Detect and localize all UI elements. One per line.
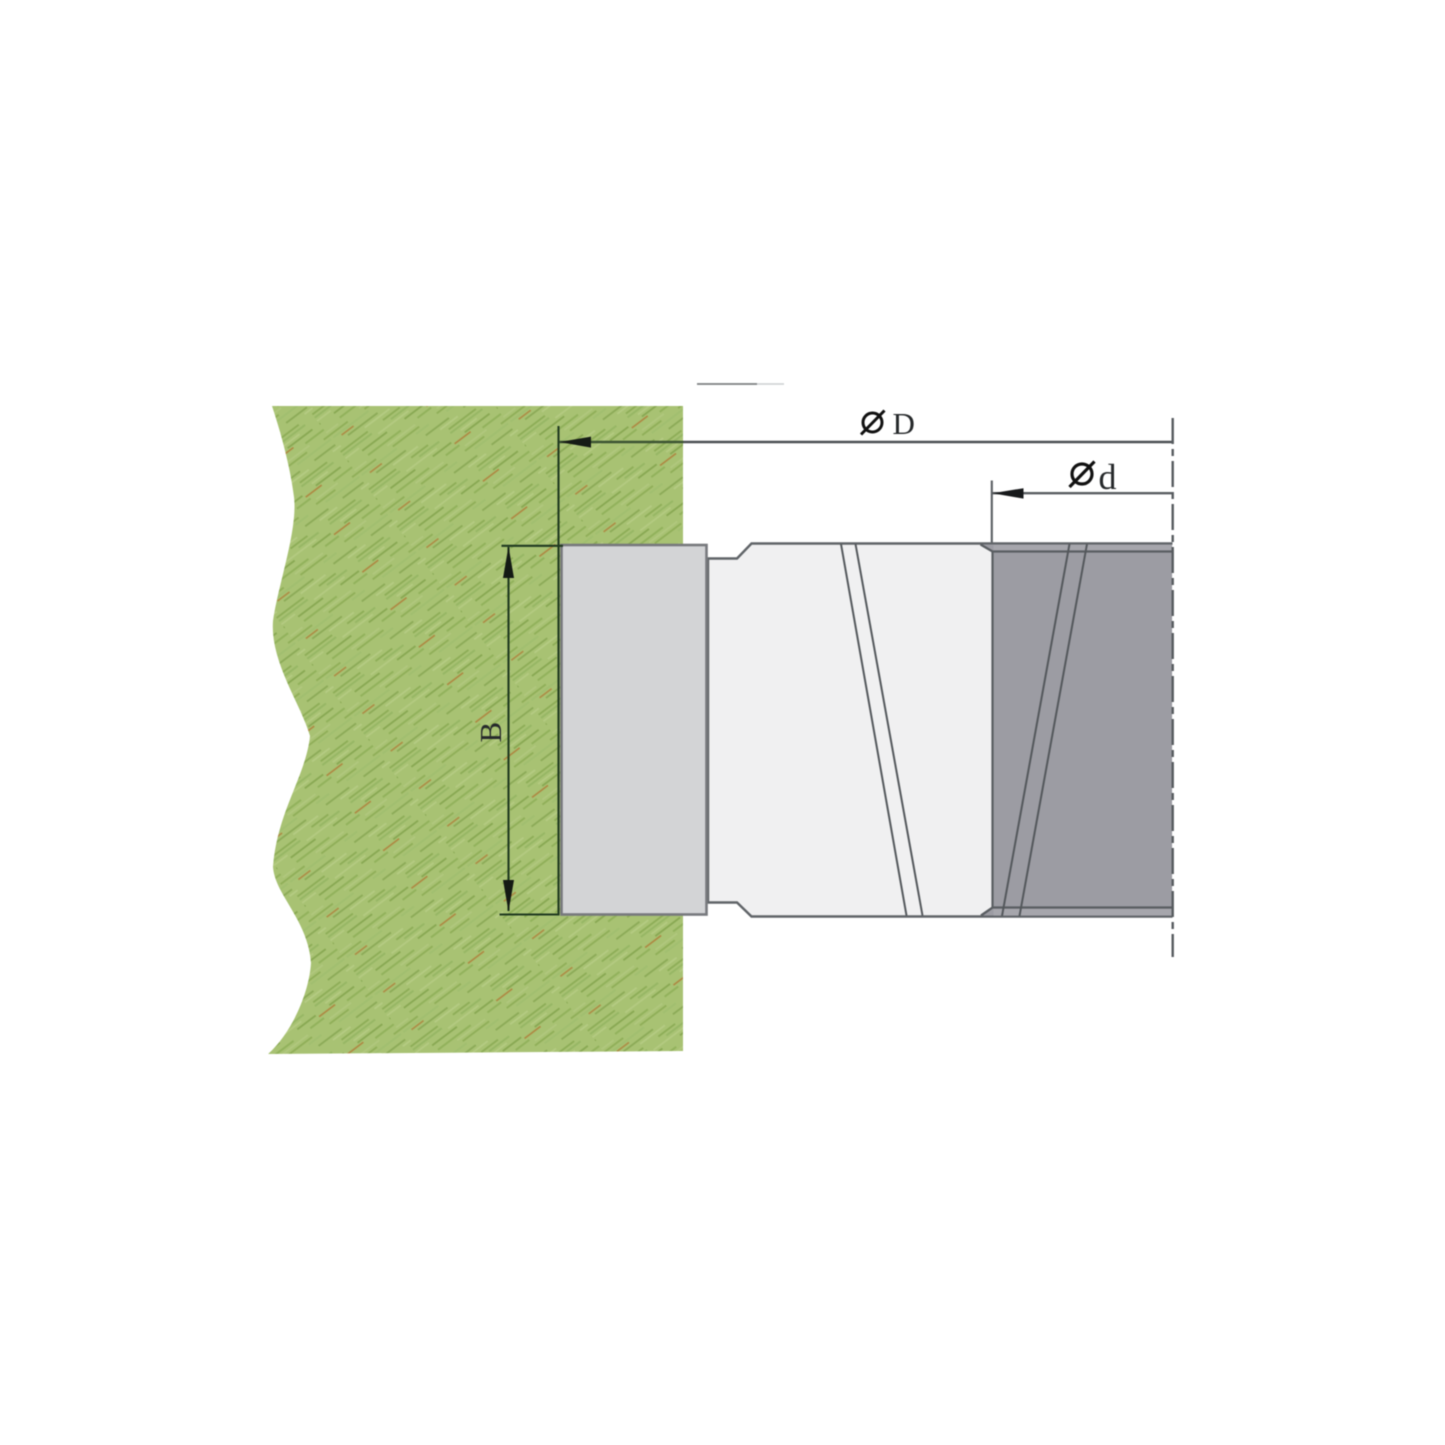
svg-text:B: B: [473, 722, 508, 743]
svg-text:d: d: [1099, 457, 1117, 497]
svg-text:D: D: [893, 406, 915, 441]
